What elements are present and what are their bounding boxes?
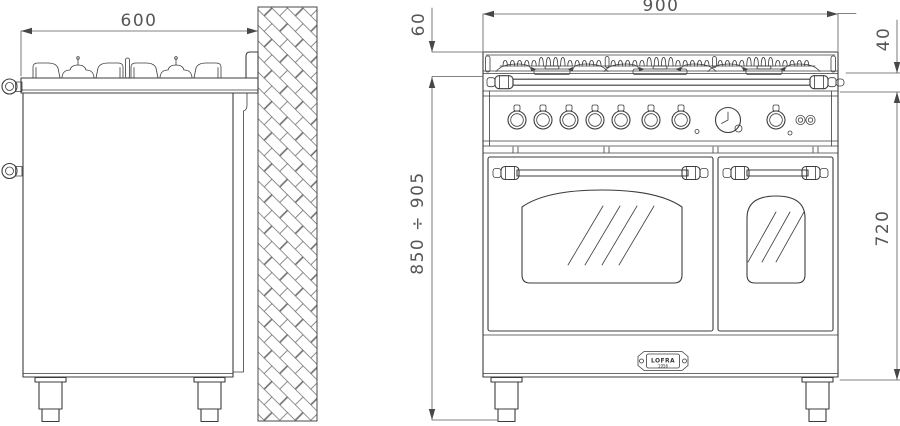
- brand-badge: LOFRA 1956: [638, 352, 688, 371]
- control-knob: [508, 105, 526, 129]
- range-cooker-technical-drawing: LOFRA 1956 600 900 60: [0, 0, 900, 426]
- ignition-button: [796, 115, 805, 124]
- dimension-width: 900: [483, 0, 856, 51]
- adjustable-foot: [35, 378, 66, 422]
- masonry-wall-hatch: [258, 7, 317, 421]
- towel-rail: [487, 76, 844, 89]
- towel-rail-end-ring: [2, 79, 22, 94]
- door-handle-end-ring: [2, 164, 22, 179]
- light-button: [806, 115, 815, 124]
- dimension-rail-band: 40: [846, 20, 900, 73]
- oven-door-handle: [517, 170, 688, 176]
- technical-drawing-sheet: LOFRA 1956 600 900 60: [0, 0, 900, 426]
- rear-trim: [246, 52, 258, 78]
- worktop-side: [21, 78, 258, 93]
- timer-clock-icon: [716, 108, 743, 133]
- dimension-label-width: 900: [643, 0, 680, 16]
- dimension-label-rail-band: 40: [874, 27, 894, 52]
- dimension-body-height: 720: [840, 92, 900, 380]
- badge-year-text: 1956: [658, 364, 669, 369]
- dimension-label-body-height: 720: [873, 210, 893, 247]
- glass-reflection-lines: [748, 212, 804, 262]
- control-knob: [642, 105, 660, 129]
- control-knob: [586, 105, 604, 129]
- oven-door-handle: [747, 170, 808, 176]
- side-view: [2, 7, 317, 422]
- adjustable-foot: [802, 378, 833, 422]
- burner-side-profile: [131, 57, 221, 78]
- badge-screw: [683, 359, 687, 363]
- dimension-worktop-height: 850 ÷ 905: [408, 77, 497, 421]
- badge-screw: [640, 359, 644, 363]
- hinge-slots: [513, 147, 818, 153]
- grate-pin: [126, 58, 130, 78]
- cooker-body-front: [483, 52, 838, 377]
- glass-reflection-lines: [568, 206, 654, 265]
- adjustable-foot: [491, 378, 522, 422]
- dimension-grate-height: 60: [409, 8, 483, 52]
- main-oven-door: [488, 157, 713, 331]
- rear-spacer: [233, 93, 247, 372]
- cooker-body-side: [23, 93, 233, 377]
- front-burners: [496, 64, 820, 75]
- control-knob: [672, 105, 690, 129]
- control-knob: [767, 105, 785, 129]
- dimension-label-depth: 600: [121, 11, 158, 31]
- control-panel: [508, 105, 815, 135]
- burner-side-profile: [33, 57, 123, 78]
- dimension-label-grate-height: 60: [409, 12, 429, 37]
- front-view: LOFRA 1956: [483, 52, 844, 422]
- indicator-light: [695, 130, 699, 134]
- adjustable-foot: [194, 378, 225, 422]
- oven-door-glass: [747, 196, 805, 283]
- control-knob: [534, 105, 552, 129]
- second-oven-door: [718, 157, 833, 331]
- control-knob: [612, 105, 630, 129]
- dimension-label-worktop-height: 850 ÷ 905: [408, 171, 428, 274]
- indicator-light: [788, 131, 792, 135]
- control-knob: [560, 105, 578, 129]
